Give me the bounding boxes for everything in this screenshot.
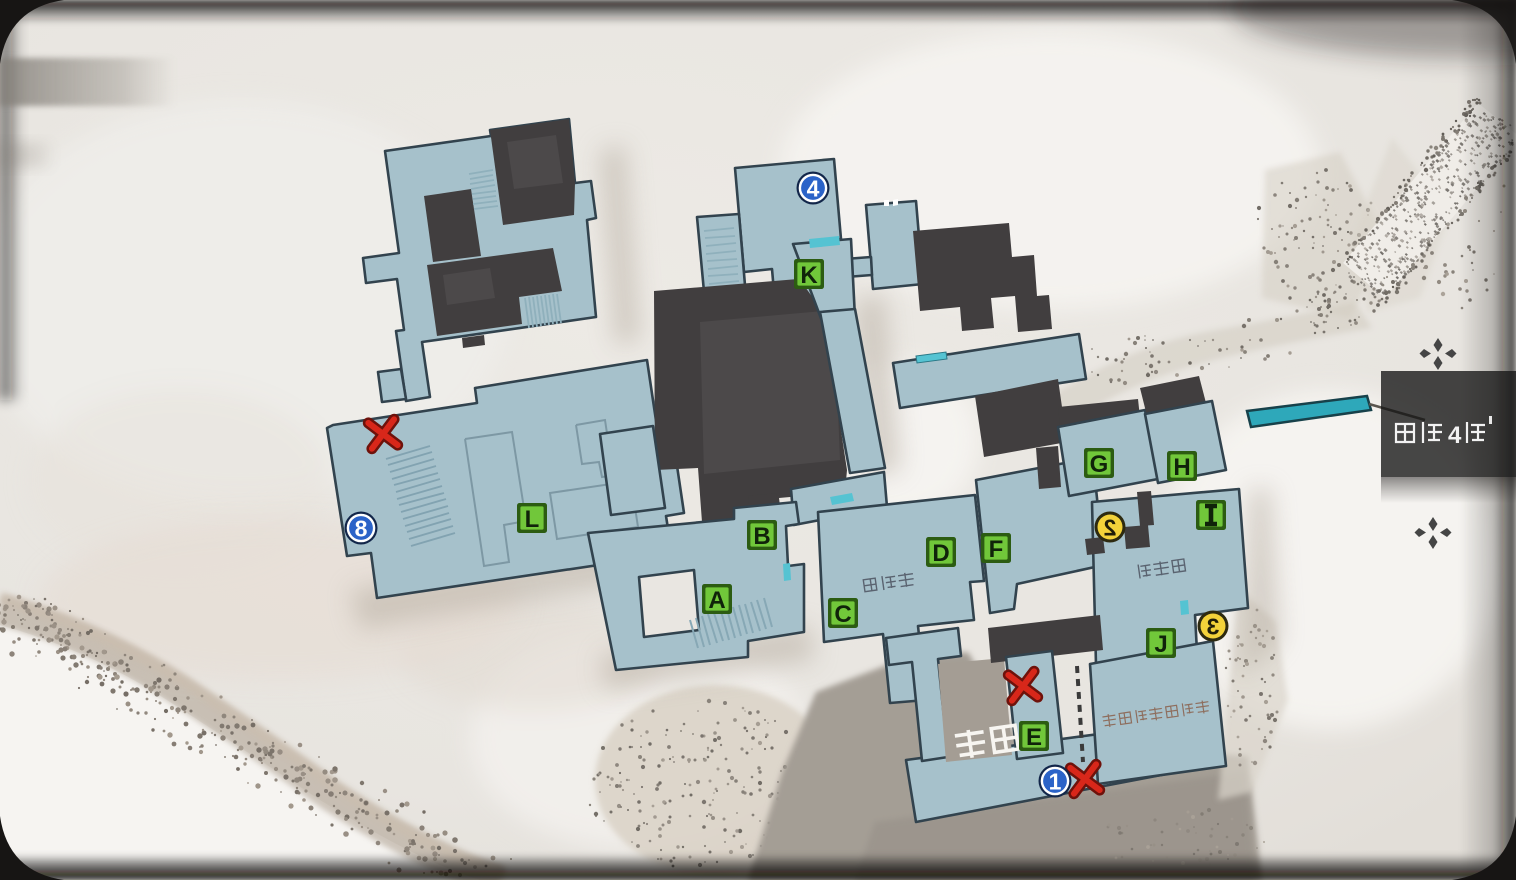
svg-text:D: D — [932, 540, 949, 567]
svg-text:2: 2 — [1104, 515, 1117, 541]
svg-text:H: H — [1173, 454, 1190, 481]
svg-text:G: G — [1090, 451, 1109, 478]
svg-text:8: 8 — [355, 516, 368, 542]
svg-text:E: E — [1026, 724, 1042, 751]
svg-text:A: A — [708, 587, 725, 614]
svg-text:L: L — [525, 506, 540, 533]
svg-text:J: J — [1154, 631, 1167, 658]
svg-text:1: 1 — [1049, 769, 1062, 795]
svg-text:4: 4 — [807, 176, 820, 202]
svg-text:4: 4 — [1448, 422, 1462, 449]
svg-text:K: K — [800, 262, 818, 289]
svg-text:F: F — [989, 536, 1004, 563]
svg-text:C: C — [834, 601, 851, 628]
svg-text:B: B — [753, 523, 770, 550]
svg-text:3: 3 — [1207, 614, 1220, 640]
